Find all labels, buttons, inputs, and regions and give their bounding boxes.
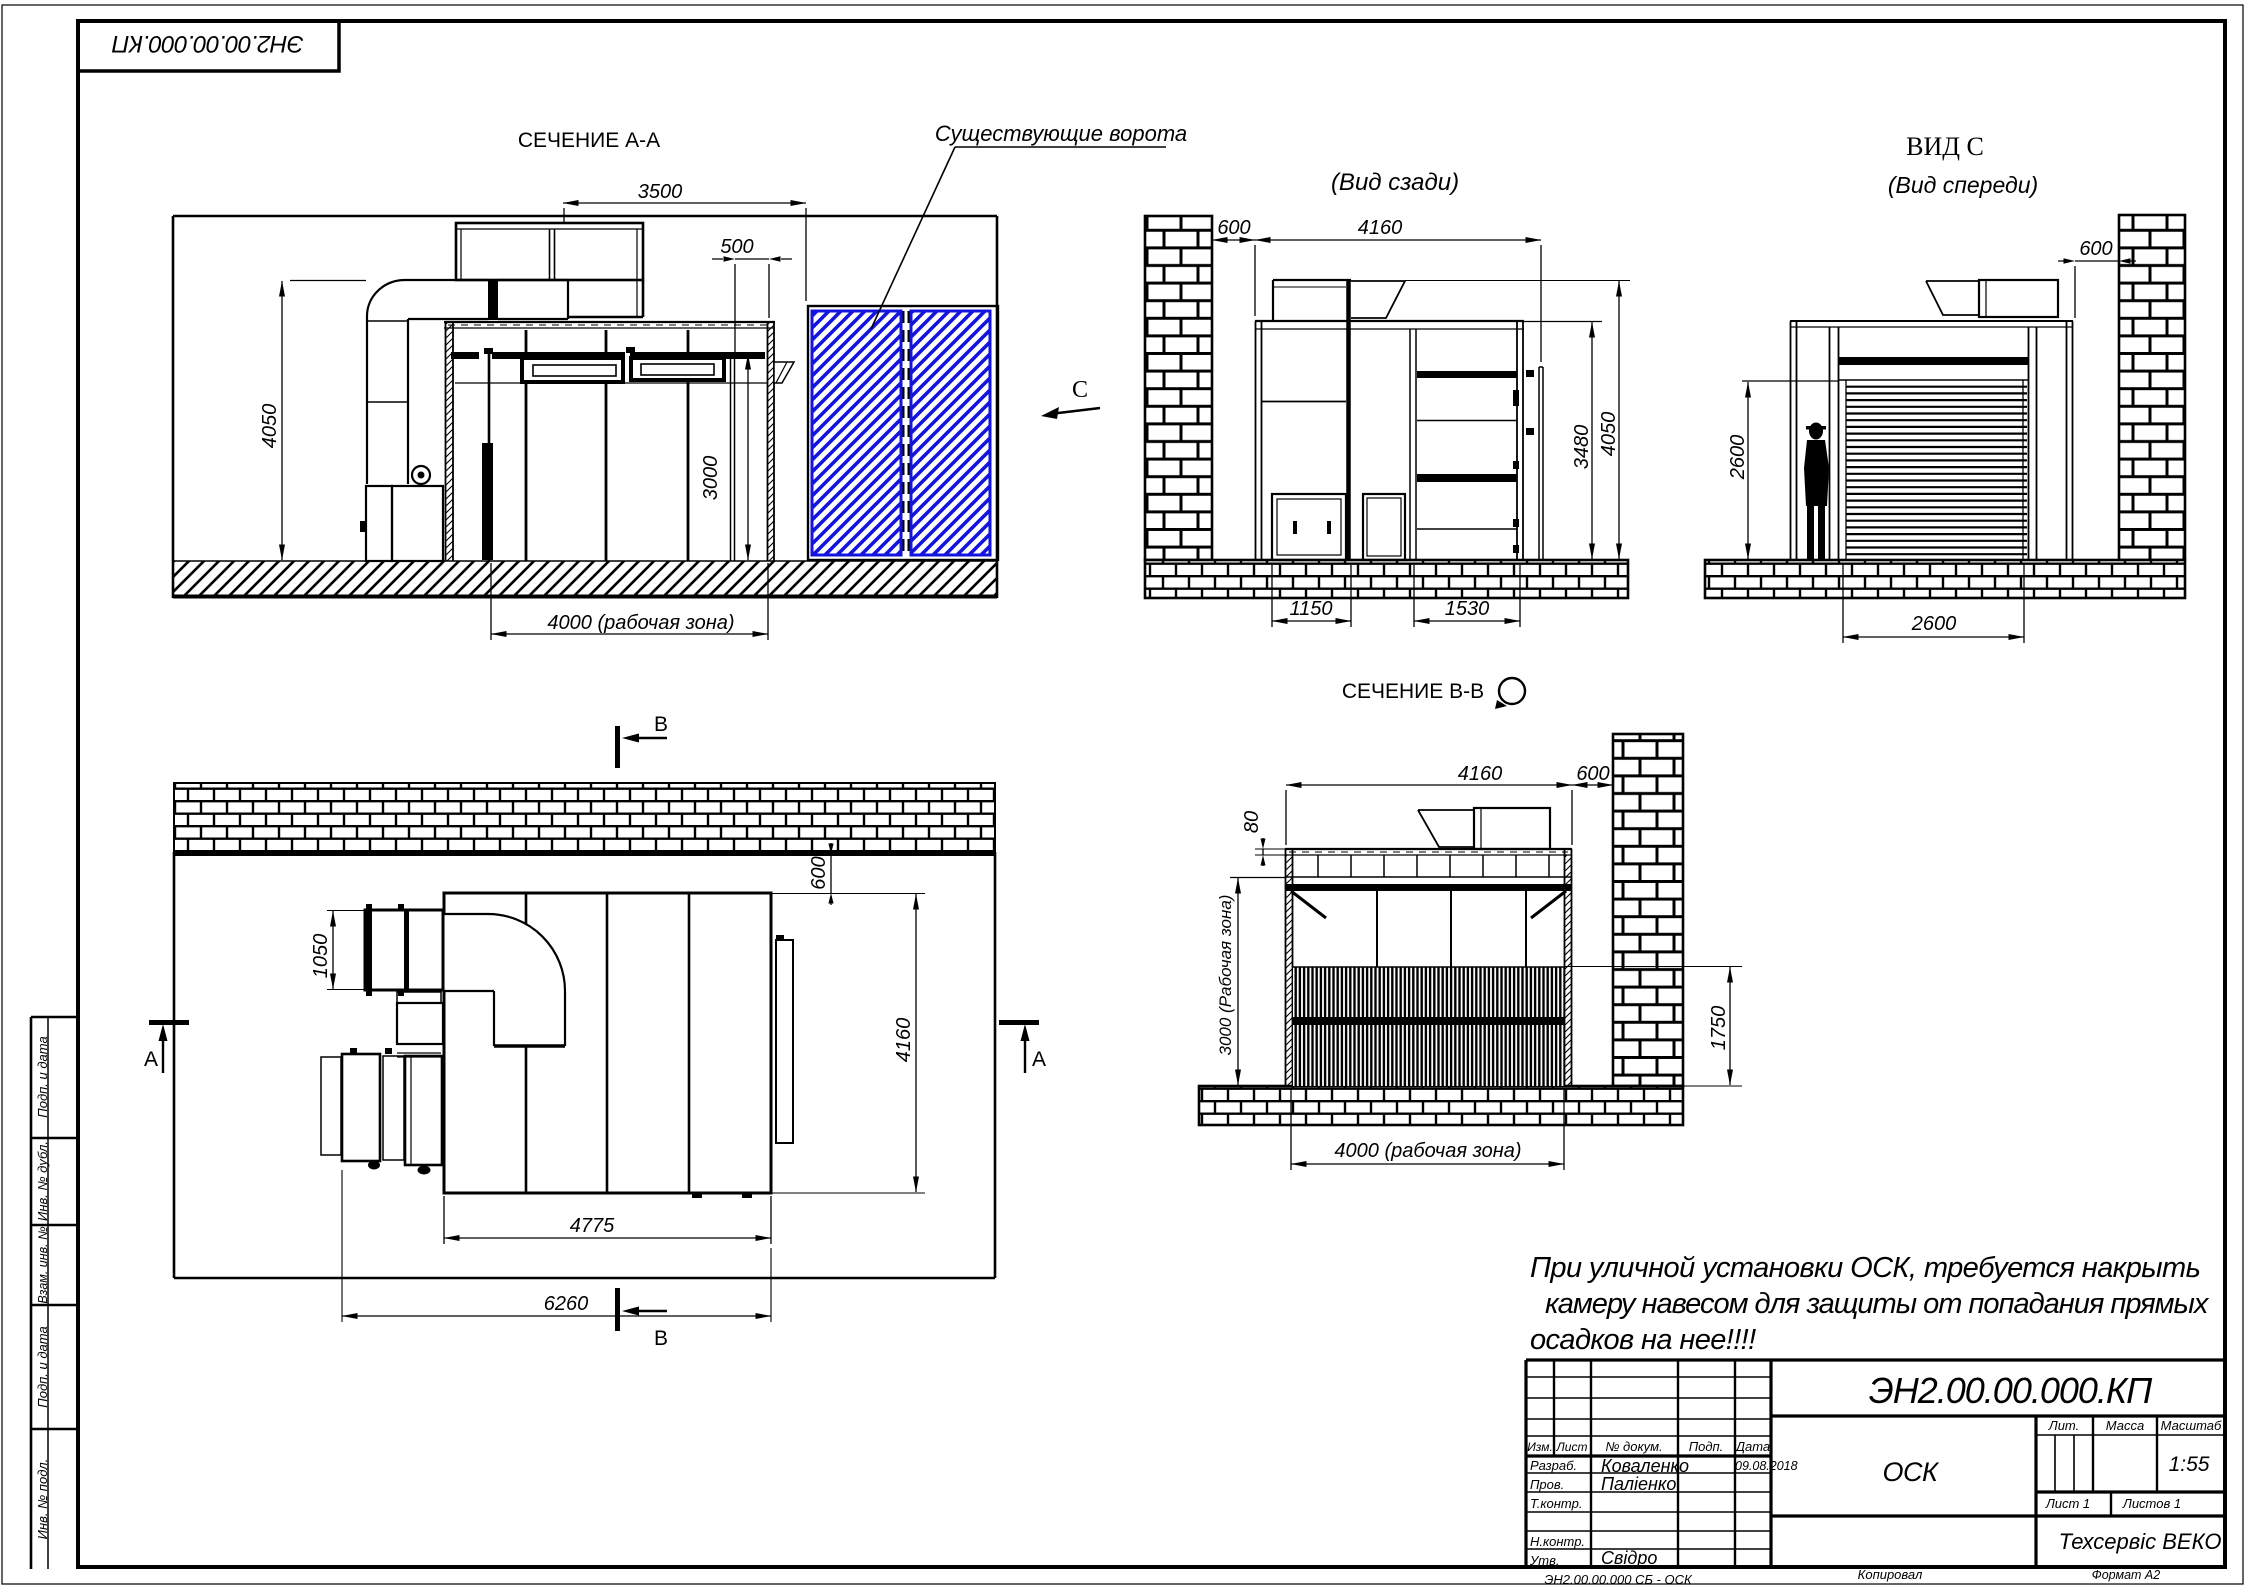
svg-text:(Вид сзади): (Вид сзади) [1331,169,1459,196]
svg-text:осадков на нее!!!!: осадков на нее!!!! [1530,1324,1756,1356]
svg-text:Взам. инв. №: Взам. инв. № [36,1226,50,1304]
svg-text:СЕЧЕНИЕ B-B: СЕЧЕНИЕ B-B [1342,680,1484,703]
svg-text:3500: 3500 [638,181,683,203]
svg-text:1050: 1050 [310,934,332,979]
svg-text:А: А [144,1048,158,1071]
svg-text:Существующие ворота: Существующие ворота [935,121,1187,146]
svg-text:Подп. и дата: Подп. и дата [35,1036,50,1117]
svg-text:2600: 2600 [1911,613,1957,635]
svg-text:А: А [1032,1048,1046,1071]
svg-text:2600: 2600 [1727,435,1749,481]
svg-text:600: 600 [2079,238,2112,260]
svg-text:(Вид спереди): (Вид спереди) [1888,172,2038,198]
svg-text:4050: 4050 [259,404,281,449]
svg-text:4000 (рабочая зона): 4000 (рабочая зона) [547,612,734,634]
svg-text:1750: 1750 [1708,1006,1730,1051]
svg-text:Листов 1: Листов 1 [2122,1496,2181,1511]
svg-text:Коваленко: Коваленко [1601,1456,1689,1476]
svg-text:ВИД С: ВИД С [1906,132,1984,161]
svg-text:Масштаб: Масштаб [2161,1418,2222,1433]
svg-text:Паліенко: Паліенко [1601,1474,1676,1494]
svg-text:ЭН2.00.00.000 СБ - ОСК: ЭН2.00.00.000 СБ - ОСК [1544,1572,1693,1587]
svg-text:Подп.: Подп. [1689,1439,1724,1454]
svg-text:600: 600 [1217,217,1250,239]
svg-text:3480: 3480 [1571,425,1593,470]
svg-text:500: 500 [720,236,753,258]
svg-text:Копировал: Копировал [1858,1567,1923,1582]
svg-text:Масса: Масса [2106,1418,2144,1433]
svg-text:4050: 4050 [1598,412,1620,457]
svg-text:ОСК: ОСК [1883,1457,1941,1487]
svg-text:Инв. № дубл.: Инв. № дубл. [35,1141,50,1221]
svg-text:Разраб.: Разраб. [1530,1458,1577,1473]
svg-text:3000 (Рабочая зона): 3000 (Рабочая зона) [1216,895,1235,1056]
svg-text:Подп. и дата: Подп. и дата [35,1326,50,1407]
svg-text:Лит.: Лит. [2048,1418,2079,1433]
svg-text:1530: 1530 [1445,598,1490,620]
svg-text:Н.контр.: Н.контр. [1530,1534,1585,1549]
svg-text:Лист: Лист [1556,1440,1588,1454]
svg-text:6260: 6260 [544,1293,589,1315]
svg-text:Дата: Дата [1734,1439,1770,1454]
svg-text:камеру навесом для защиты от п: камеру навесом для защиты от попадания п… [1545,1288,2210,1320]
svg-text:1150: 1150 [1289,598,1332,620]
svg-text:600: 600 [1576,763,1609,785]
svg-text:Лист 1: Лист 1 [2045,1496,2090,1511]
svg-text:4775: 4775 [570,1215,615,1237]
svg-text:В: В [654,1327,668,1350]
svg-text:Техсервіс ВЕКО: Техсервіс ВЕКО [2059,1529,2222,1554]
svg-text:600: 600 [808,856,830,889]
svg-text:80: 80 [1241,811,1263,833]
svg-text:Утв.: Утв. [1529,1553,1560,1568]
svg-text:Формат А2: Формат А2 [2092,1568,2160,1582]
svg-text:4160: 4160 [1458,763,1503,785]
svg-text:4160: 4160 [893,1018,915,1063]
svg-text:Пров.: Пров. [1530,1477,1564,1492]
svg-text:4000 (рабочая зона): 4000 (рабочая зона) [1334,1140,1521,1162]
svg-text:В: В [654,713,668,736]
svg-text:1:55: 1:55 [2169,1453,2210,1476]
svg-text:Инв. № подл.: Инв. № подл. [35,1459,50,1540]
svg-text:№ докум.: № докум. [1605,1439,1662,1454]
svg-text:ЭН2.00.00.000.КП: ЭН2.00.00.000.КП [111,30,303,57]
svg-text:Изм.: Изм. [1527,1440,1553,1454]
svg-text:СЕЧЕНИЕ A-A: СЕЧЕНИЕ A-A [518,129,660,152]
svg-text:3000: 3000 [700,456,722,501]
svg-text:Т.контр.: Т.контр. [1530,1496,1582,1511]
svg-text:При уличной установки ОСК, тре: При уличной установки ОСК, требуется нак… [1530,1252,2200,1284]
svg-text:Свідро: Свідро [1601,1548,1657,1568]
svg-text:ЭН2.00.00.000.КП: ЭН2.00.00.000.КП [1869,1370,2153,1411]
svg-text:С: С [1072,377,1088,403]
svg-text:09.08.2018: 09.08.2018 [1735,1459,1798,1473]
svg-text:4160: 4160 [1358,217,1403,239]
